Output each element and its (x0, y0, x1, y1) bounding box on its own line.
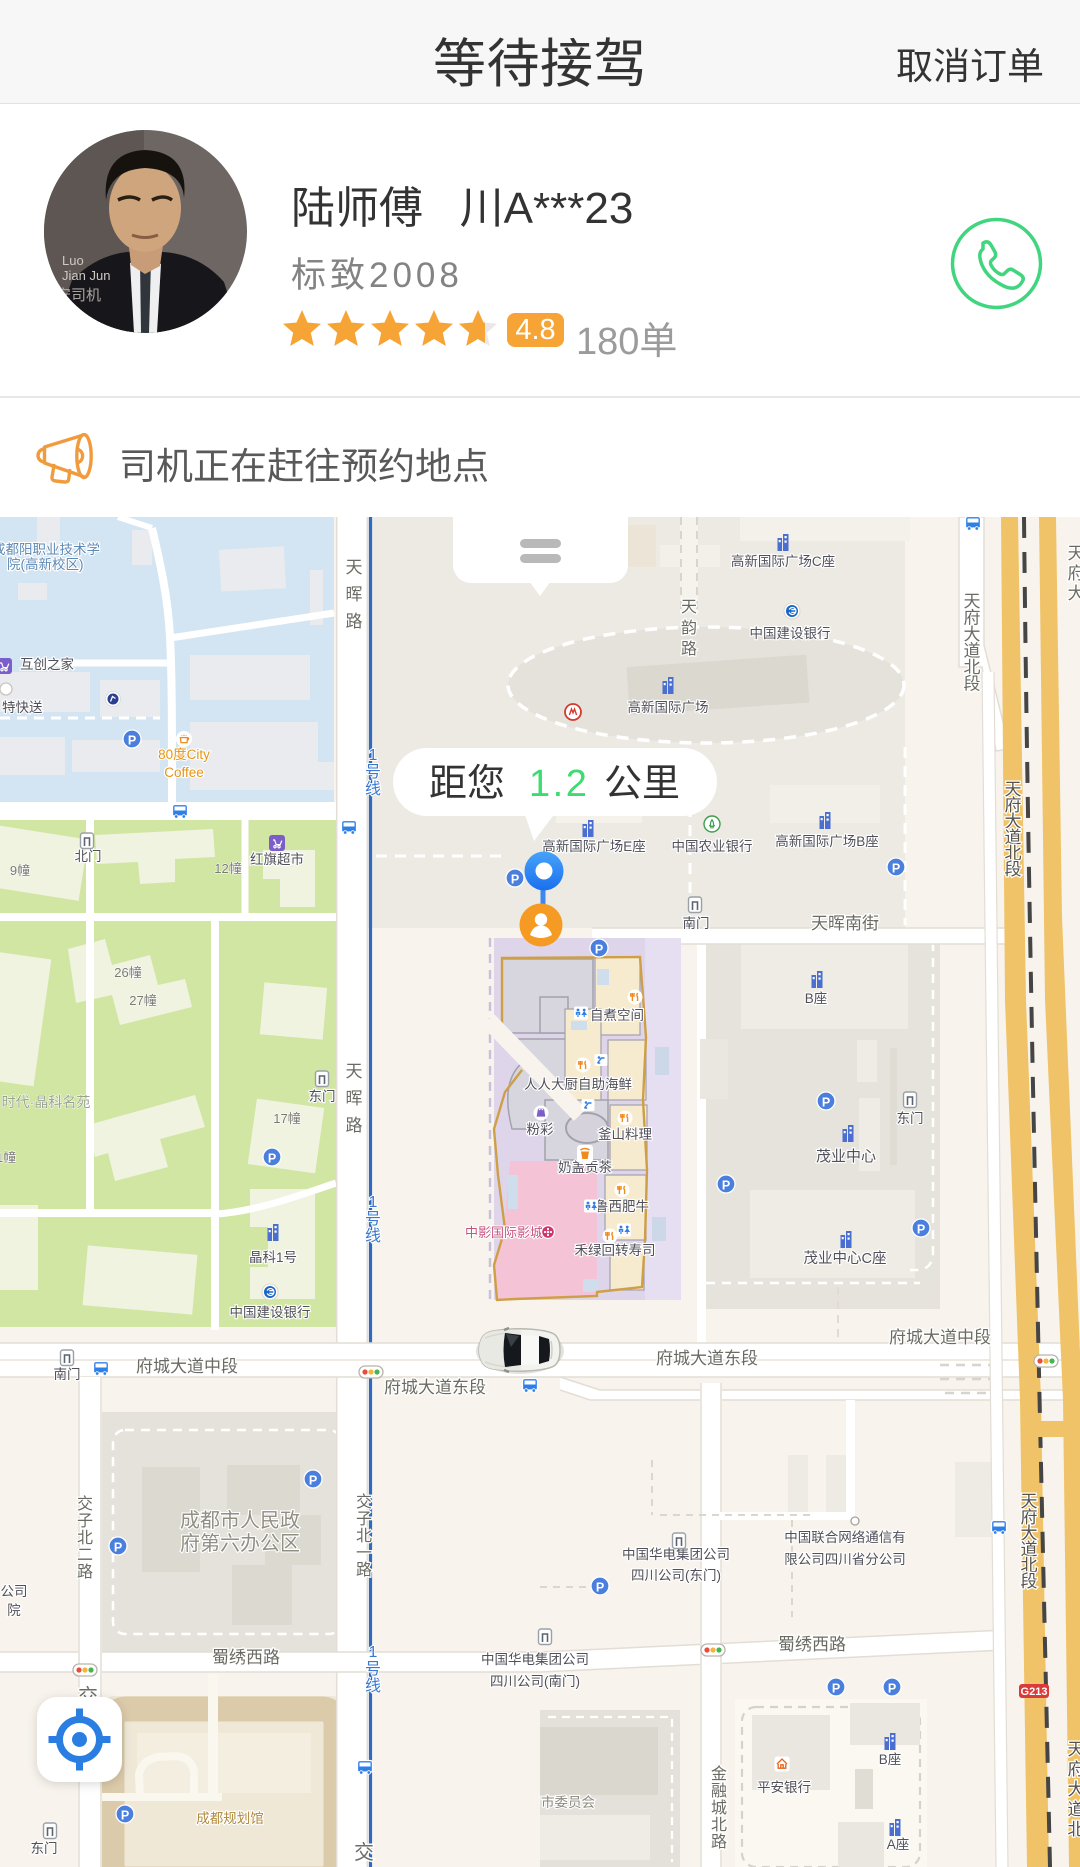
svg-text:天府大道北段: 天府大道北段 (1021, 1492, 1038, 1591)
svg-text:1.2: 1.2 (529, 763, 589, 805)
svg-text:中国华电集团公司: 中国华电集团公司 (481, 1652, 589, 1667)
svg-text:府城大道中段: 府城大道中段 (136, 1357, 238, 1376)
svg-text:天府大: 天府大 (1068, 544, 1080, 603)
svg-text:东门: 东门 (309, 1089, 336, 1104)
svg-text:成都市人民政: 成都市人民政 (180, 1509, 300, 1532)
svg-text:安司机: 安司机 (56, 287, 101, 304)
svg-text:中国华电集团公司: 中国华电集团公司 (622, 1547, 730, 1562)
svg-text:Luo: Luo (62, 253, 84, 268)
svg-text:府城大道中段: 府城大道中段 (889, 1328, 991, 1347)
svg-text:17幢: 17幢 (273, 1111, 300, 1126)
svg-text:鲁西肥牛: 鲁西肥牛 (595, 1199, 649, 1214)
svg-text:四川公司(南门): 四川公司(南门) (490, 1674, 580, 1689)
svg-text:平安银行: 平安银行 (757, 1780, 811, 1795)
svg-text:粉彩: 粉彩 (527, 1122, 555, 1137)
svg-text:南门: 南门 (683, 916, 710, 931)
svg-text:高新国际广场B座: 高新国际广场B座 (775, 833, 879, 849)
svg-text:公里: 公里 (604, 763, 680, 805)
svg-text:成都规划馆: 成都规划馆 (196, 1811, 264, 1826)
svg-text:B座: B座 (805, 991, 828, 1006)
svg-text:天晖路: 天晖路 (346, 1062, 363, 1135)
svg-text:限公司四川省分公司: 限公司四川省分公司 (784, 1552, 906, 1567)
svg-text:南门: 南门 (54, 1367, 81, 1382)
svg-text:1幢: 1幢 (0, 1150, 16, 1165)
svg-text:G213: G213 (1021, 1686, 1048, 1698)
svg-text:B座: B座 (879, 1752, 902, 1767)
svg-text:交子北一路: 交子北一路 (356, 1493, 372, 1579)
svg-text:釜山料理: 釜山料理 (598, 1127, 652, 1142)
svg-text:府城大道东段: 府城大道东段 (656, 1349, 758, 1368)
svg-text:四川公司(东门): 四川公司(东门) (631, 1568, 721, 1583)
svg-text:Jian Jun: Jian Jun (62, 268, 110, 283)
svg-text:天府大道北段: 天府大道北段 (964, 592, 981, 694)
svg-text:A座: A座 (887, 1837, 910, 1852)
svg-text:中国农业银行: 中国农业银行 (672, 839, 753, 854)
svg-text:府第六办公区: 府第六办公区 (180, 1532, 300, 1555)
svg-text:蜀绣西路: 蜀绣西路 (212, 1648, 280, 1667)
svg-text:高新国际广场E座: 高新国际广场E座 (542, 838, 646, 854)
svg-text:26幢: 26幢 (114, 965, 141, 980)
svg-text:府城大道东段: 府城大道东段 (384, 1378, 486, 1397)
svg-text:禾绿回转寿司: 禾绿回转寿司 (575, 1242, 656, 1258)
svg-text:时代·晶科名苑: 时代·晶科名苑 (2, 1094, 91, 1110)
svg-text:市委员会: 市委员会 (541, 1794, 595, 1810)
svg-text:自煮空间: 自煮空间 (590, 1008, 644, 1023)
svg-text:天晖路: 天晖路 (346, 558, 363, 631)
svg-text:东门: 东门 (897, 1111, 924, 1126)
svg-text:Coffee: Coffee (164, 765, 204, 780)
svg-text:金融城北路: 金融城北路 (711, 1765, 727, 1851)
svg-text:人人大厨自助海鲜: 人人大厨自助海鲜 (524, 1077, 632, 1092)
svg-text:公司: 公司 (1, 1584, 28, 1599)
svg-text:特快送: 特快送 (2, 700, 43, 715)
svg-text:茂业中心C座: 茂业中心C座 (804, 1250, 887, 1267)
svg-text:高新国际广场C座: 高新国际广场C座 (731, 553, 835, 569)
svg-text:中国联合网络通信有: 中国联合网络通信有 (784, 1530, 906, 1545)
svg-text:交子北二路: 交子北二路 (77, 1495, 93, 1581)
svg-text:院(高新校区): 院(高新校区) (7, 556, 84, 572)
svg-text:中国建设银行: 中国建设银行 (230, 1305, 311, 1320)
svg-text:院: 院 (7, 1603, 21, 1618)
svg-text:东门: 东门 (31, 1841, 58, 1856)
svg-text:中国建设银行: 中国建设银行 (750, 626, 831, 641)
svg-text:蜀绣西路: 蜀绣西路 (778, 1635, 846, 1654)
svg-text:高新国际广场: 高新国际广场 (628, 699, 709, 715)
svg-text:天府大道北: 天府大道北 (1068, 1740, 1080, 1839)
svg-text:中影国际影城: 中影国际影城 (465, 1225, 543, 1240)
svg-text:晶科1号: 晶科1号 (249, 1250, 297, 1265)
svg-text:天府大道北段: 天府大道北段 (1005, 780, 1022, 879)
svg-text:成都阳职业技术学: 成都阳职业技术学 (0, 542, 100, 557)
svg-text:天晖南街: 天晖南街 (811, 914, 879, 933)
svg-text:27幢: 27幢 (129, 993, 156, 1008)
svg-text:80度City: 80度City (158, 747, 210, 762)
svg-text:互创之家: 互创之家 (20, 656, 74, 672)
svg-text:12幢: 12幢 (214, 861, 241, 876)
svg-text:北门: 北门 (75, 849, 102, 864)
svg-text:交: 交 (354, 1841, 374, 1864)
svg-text:茂业中心: 茂业中心 (816, 1148, 876, 1165)
svg-text:红旗超市: 红旗超市 (250, 851, 304, 867)
svg-text:9幢: 9幢 (10, 863, 30, 878)
svg-text:天韵路: 天韵路 (681, 599, 697, 658)
svg-text:距您: 距您 (429, 763, 505, 805)
